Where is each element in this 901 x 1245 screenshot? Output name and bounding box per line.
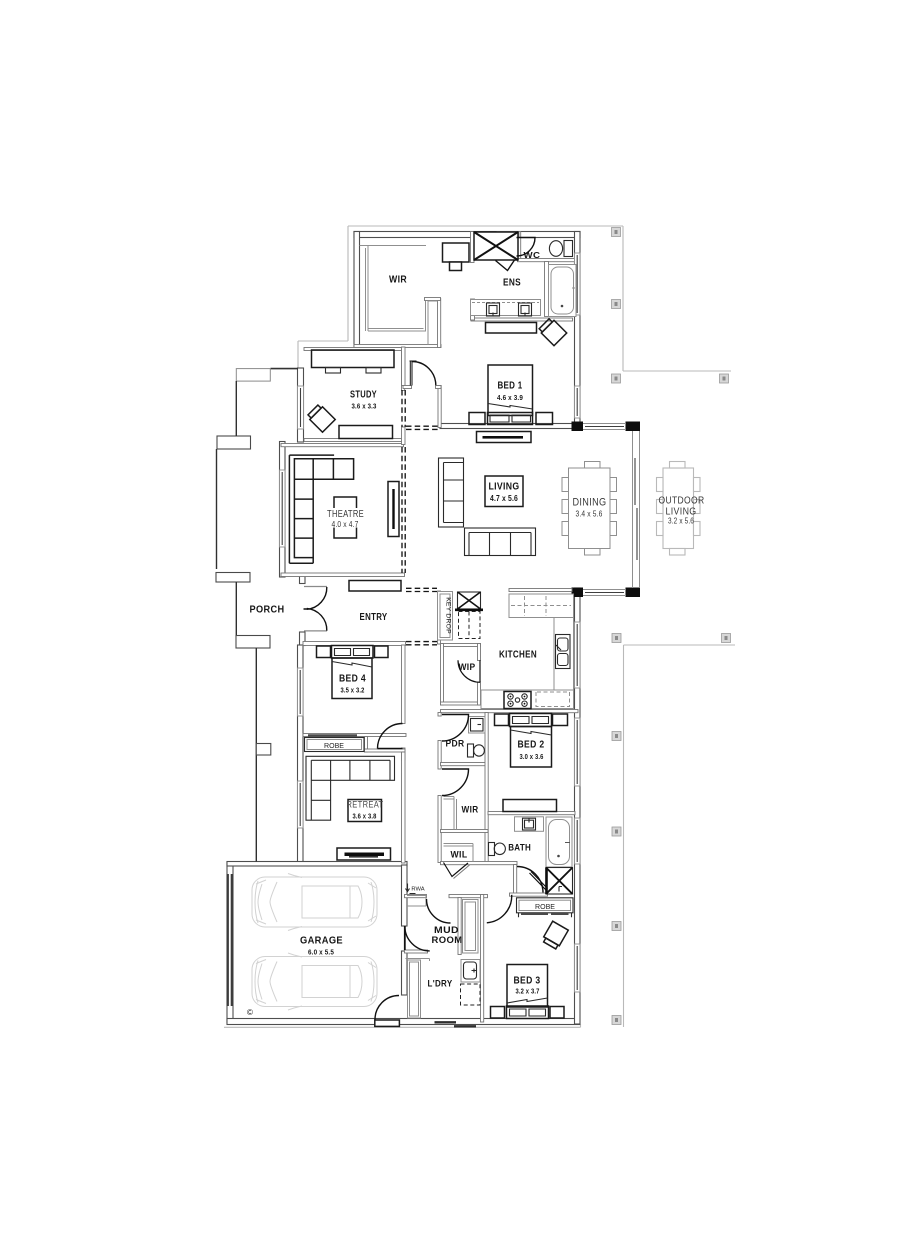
- svg-text:3.6 x 3.3: 3.6 x 3.3: [352, 402, 377, 411]
- svg-text:WIL: WIL: [451, 850, 468, 860]
- svg-text:BATH: BATH: [508, 842, 531, 853]
- svg-text:©: ©: [247, 1008, 253, 1017]
- svg-text:3.4 x 5.6: 3.4 x 5.6: [576, 510, 603, 519]
- svg-text:3.5 x 3.2: 3.5 x 3.2: [341, 686, 365, 695]
- svg-text:4.0 x 4.7: 4.0 x 4.7: [332, 520, 359, 529]
- svg-text:4.7 x 5.6: 4.7 x 5.6: [490, 494, 518, 503]
- svg-text:BED 2: BED 2: [518, 740, 545, 751]
- svg-text:WC: WC: [524, 250, 541, 260]
- svg-text:RWA: RWA: [411, 887, 424, 893]
- svg-text:4.6 x 3.9: 4.6 x 3.9: [497, 393, 523, 402]
- svg-text:L'DRY: L'DRY: [428, 978, 453, 989]
- svg-text:PORCH: PORCH: [250, 605, 285, 616]
- svg-text:STUDY: STUDY: [350, 390, 377, 401]
- svg-text:DINING: DINING: [573, 497, 607, 509]
- svg-text:ENS: ENS: [503, 278, 521, 289]
- svg-text:ENTRY: ENTRY: [360, 612, 388, 623]
- svg-text:3.2 x 3.7: 3.2 x 3.7: [516, 987, 540, 996]
- svg-text:KITCHEN: KITCHEN: [499, 650, 537, 661]
- svg-text:WIR: WIR: [462, 805, 479, 815]
- svg-text:WIR: WIR: [389, 275, 407, 286]
- svg-text:3.0 x 3.6: 3.0 x 3.6: [520, 752, 544, 761]
- svg-text:ROBE: ROBE: [324, 741, 344, 750]
- svg-text:3.6 x 3.8: 3.6 x 3.8: [353, 812, 377, 821]
- svg-text:ROBE: ROBE: [535, 902, 555, 911]
- svg-text:KEY DROP: KEY DROP: [445, 597, 452, 634]
- svg-text:6.0 x 5.5: 6.0 x 5.5: [308, 948, 334, 957]
- svg-text:RETREAT: RETREAT: [347, 800, 384, 810]
- svg-text:BED 1: BED 1: [498, 380, 523, 392]
- svg-text:PDR: PDR: [446, 738, 465, 749]
- svg-text:THEATRE: THEATRE: [327, 509, 364, 520]
- svg-text:BED 4: BED 4: [339, 674, 366, 685]
- svg-text:3.2 x 5.6: 3.2 x 5.6: [668, 517, 694, 526]
- svg-text:BED 3: BED 3: [514, 976, 541, 987]
- svg-text:LIVING: LIVING: [489, 481, 520, 493]
- svg-text:ROOM: ROOM: [432, 934, 463, 945]
- svg-text:GARAGE: GARAGE: [300, 935, 343, 947]
